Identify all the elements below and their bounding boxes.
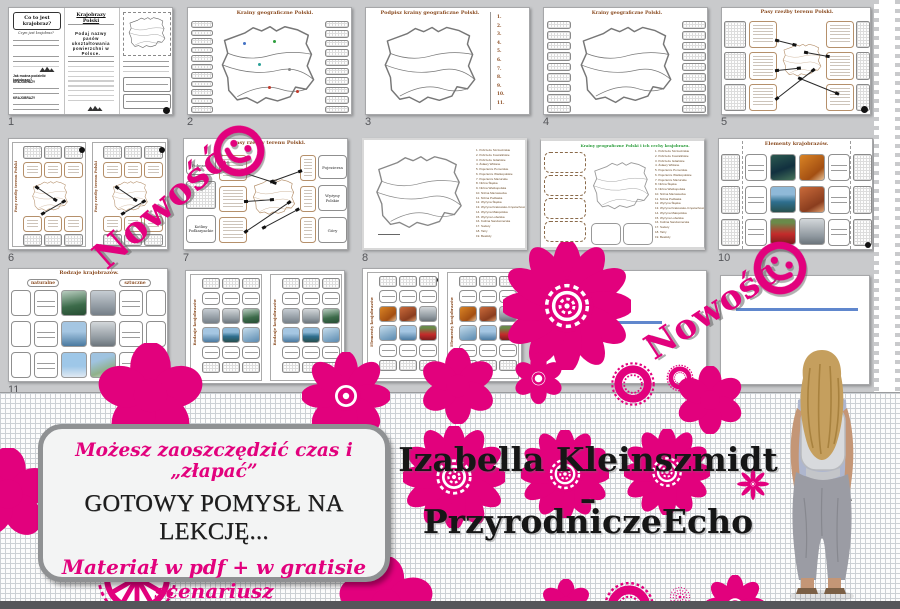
photo-skyscrapers — [90, 290, 116, 316]
caption-box — [34, 321, 58, 347]
worksheet-header-box: Co to jest krajobraz? — [13, 12, 61, 30]
grid-box — [282, 278, 300, 289]
caption-lines — [402, 292, 415, 301]
caption-box — [242, 292, 260, 305]
map-marker — [273, 40, 276, 43]
caption-lines — [37, 297, 55, 310]
answer-box — [11, 321, 31, 347]
slide-number: 3 — [365, 116, 371, 128]
text-box — [826, 52, 854, 79]
grid-box — [724, 21, 746, 48]
caption-box — [828, 154, 850, 181]
promo-collage-screen: Co to jest krajobraz? Czym jest krajobra… — [0, 0, 900, 609]
text-box — [219, 186, 247, 212]
grid-box — [682, 21, 706, 29]
label-text: Kotliny Podkarpackie — [187, 225, 215, 233]
grid-box — [64, 234, 83, 246]
answer-box-column — [547, 21, 571, 113]
slide-thumbnail-9[interactable]: Krainy geograficzne Polski i ich cechy k… — [540, 138, 705, 250]
grid-box — [682, 52, 706, 60]
text-box — [144, 162, 163, 178]
list-item: 1. — [497, 14, 527, 23]
text-box-row — [23, 216, 83, 232]
answer-box-column — [325, 21, 349, 113]
slide-title: Podpisz krainy geograficzne Polski. — [374, 11, 486, 17]
answer-box — [544, 152, 586, 173]
panel-title: Rodzaje krajobrazów — [192, 299, 197, 346]
grid-box — [242, 362, 260, 373]
text-box-row — [23, 162, 83, 178]
slide-title: Krainy geograficzne Polski. — [216, 11, 334, 17]
list-item: 5. — [497, 48, 527, 57]
slide-thumbnail-2[interactable]: Krainy geograficzne Polski. — [187, 7, 352, 115]
list-item: 19. Beskidy — [655, 235, 705, 240]
text-box — [124, 162, 143, 178]
map-marker — [268, 86, 271, 89]
promo-line-3: Materiał w pdf + w gratisie scenariusz — [43, 555, 385, 603]
logo-dot — [79, 147, 85, 153]
grid-box — [547, 52, 571, 60]
caption-box-column — [34, 290, 58, 378]
slide-title: Krainy geograficzne Polski i ich cechy k… — [567, 143, 703, 148]
slide-number: 2 — [187, 116, 193, 128]
caption-box — [828, 219, 850, 246]
slide-title: Pasy rzeźby terenu Polski. — [742, 10, 852, 16]
mountain-icon — [39, 66, 55, 72]
caption-box — [399, 290, 417, 303]
grid-box — [682, 31, 706, 39]
photo-blue-mountains — [202, 327, 220, 343]
text-box — [44, 162, 63, 178]
caption-row — [202, 292, 260, 305]
grid-box-row — [202, 362, 260, 373]
grid-box — [547, 42, 571, 50]
caption-row — [282, 292, 340, 305]
grid-box — [724, 52, 746, 79]
answer-box — [11, 290, 31, 316]
caption-box — [479, 290, 497, 303]
promo-line-1: Możesz zaoszczędzić czas i „złapać” — [43, 440, 385, 482]
list-item: 11. — [497, 100, 527, 109]
grid-box — [124, 146, 143, 159]
grid-box-column — [853, 154, 872, 246]
worksheet-question: Czym jest krajobraz? — [13, 31, 59, 35]
list-item: 2. — [497, 23, 527, 32]
photo-skyscrapers — [202, 308, 220, 324]
cut-line — [850, 141, 851, 249]
grid-box-column — [721, 154, 740, 246]
answer-box — [146, 290, 166, 316]
panel-title: Pasy rzeźby terenu Polski — [14, 161, 18, 212]
caption-lines — [245, 294, 258, 303]
grid-box — [379, 276, 397, 287]
map-box — [123, 12, 171, 56]
list-item: 4. — [497, 40, 527, 49]
caption-box — [419, 290, 437, 303]
list-item: 6. — [497, 57, 527, 66]
slide-title: Krainy geograficzne Polski. — [574, 11, 680, 16]
photo-canyon — [799, 186, 825, 213]
logo-dot — [865, 242, 871, 248]
grid-box — [547, 31, 571, 39]
category-label-left: naturalne — [27, 279, 59, 287]
grid-box-row — [23, 234, 83, 246]
ruled-lines — [13, 84, 59, 94]
grid-box — [399, 276, 417, 287]
label-box: Góry — [318, 217, 347, 243]
caption-lines — [245, 348, 258, 357]
ruled-lines — [13, 100, 59, 110]
caption-box — [302, 292, 320, 305]
divider — [119, 8, 120, 114]
grid-box — [856, 21, 870, 48]
photo-blue-mountains — [61, 321, 87, 347]
grid-box — [682, 84, 706, 92]
text-box — [749, 84, 777, 111]
grid-box — [202, 362, 220, 373]
grid-box — [547, 63, 571, 71]
photo-blue-mountains — [479, 325, 497, 341]
grid-box — [682, 42, 706, 50]
grid-box — [459, 276, 477, 287]
text-box — [826, 84, 854, 111]
list-item: 9. — [497, 83, 527, 92]
caption-lines — [225, 348, 238, 357]
grid-box — [325, 30, 349, 37]
photo-autumn — [459, 306, 477, 322]
list-item: 10. — [497, 91, 527, 100]
panel-title: Rodzaje krajobrazów — [272, 299, 277, 346]
grid-box — [721, 219, 740, 246]
promo-box: Możesz zaoszczędzić czas i „złapać” GOTO… — [38, 424, 390, 582]
text-box — [749, 21, 777, 48]
photo-row — [379, 306, 437, 322]
ruled-lines — [68, 52, 114, 104]
grid-box — [202, 278, 220, 289]
poland-map — [378, 23, 482, 111]
answer-box-column — [724, 21, 746, 111]
text-box — [826, 21, 854, 48]
promo-line-2: GOTOWY POMYSŁ NA LEKCJĘ... — [43, 490, 385, 546]
text-box — [44, 216, 63, 232]
caption-lines — [325, 294, 338, 303]
photo-forest — [322, 308, 340, 324]
grid-box — [44, 234, 63, 246]
slide-number: 4 — [543, 116, 549, 128]
photo-blue-mountains — [282, 327, 300, 343]
slide-number: 6 — [8, 252, 14, 264]
list-item: 7. — [497, 66, 527, 75]
text-box — [103, 162, 122, 178]
grid-box — [682, 105, 706, 113]
map-marker — [258, 63, 261, 66]
map-scale-bar — [378, 234, 400, 235]
caption-box — [222, 346, 240, 359]
grid-box — [325, 59, 349, 66]
category-label-right: sztuczne — [119, 279, 151, 287]
caption-lines — [831, 225, 847, 239]
slide-thumbnail-10[interactable]: Elementy krajobrazów. — [718, 138, 873, 250]
text-box-row — [103, 162, 163, 178]
poland-map — [126, 16, 168, 51]
caption-lines — [402, 346, 415, 355]
grid-box — [325, 77, 349, 84]
question-box — [123, 77, 171, 92]
grid-box — [721, 186, 740, 213]
grid-box — [191, 30, 213, 37]
caption-lines — [285, 294, 298, 303]
caption-lines — [122, 297, 140, 310]
caption-lines — [462, 292, 475, 301]
map-marker — [296, 90, 299, 93]
photo-mountains-night — [770, 154, 796, 181]
caption-lines — [748, 161, 764, 175]
grid-box — [853, 154, 872, 181]
grid-box — [103, 146, 122, 159]
label-text: Wyżyny Polskie — [319, 193, 346, 203]
photo-city — [222, 308, 240, 324]
grid-box — [682, 63, 706, 71]
caption-box — [242, 346, 260, 359]
mountain-icon — [87, 105, 103, 111]
caption-row — [202, 346, 260, 359]
slide-thumbnail-3[interactable]: Podpisz krainy geograficzne Polski. 1.2.… — [365, 7, 530, 115]
panel-title: Pasy rzeźby terenu Polski — [94, 161, 98, 212]
photo-forest — [242, 308, 260, 324]
photo-row — [202, 327, 260, 343]
panel-title: Elementy krajobrazów — [369, 297, 374, 347]
photo-autumn — [379, 306, 397, 322]
ruled-lines — [123, 57, 169, 74]
grid-box — [325, 40, 349, 47]
grid-box — [721, 154, 740, 181]
caption-box — [202, 346, 220, 359]
grid-box — [222, 362, 240, 373]
caption-box — [379, 290, 397, 303]
grid-box-row — [103, 146, 163, 159]
grid-box — [191, 38, 213, 45]
grid-box — [325, 87, 349, 94]
caption-lines — [205, 294, 218, 303]
slide-number: 10 — [718, 252, 730, 264]
grid-box — [547, 84, 571, 92]
divider — [490, 12, 491, 110]
slide-thumbnail-5[interactable]: Pasy rzeźby terenu Polski. — [721, 7, 871, 115]
caption-lines — [422, 292, 435, 301]
photo-skyscrapers — [282, 308, 300, 324]
grid-box — [547, 105, 571, 113]
ruled-lines — [68, 20, 114, 28]
caption-box — [282, 346, 300, 359]
list-item: 8. — [497, 74, 527, 83]
poland-map — [574, 21, 678, 113]
flower-icon — [420, 348, 496, 424]
caption-lines — [37, 328, 55, 341]
grid-box — [191, 21, 213, 28]
caption-box — [399, 344, 417, 357]
cut-line — [742, 141, 743, 249]
answer-box — [544, 175, 586, 196]
grid-box — [23, 146, 42, 159]
slide-number: 8 — [362, 252, 368, 264]
label-box: Pojezierza — [318, 155, 347, 179]
grid-box — [419, 276, 437, 287]
region-list: 1. Pobrzeże Szczecińskie2. Pobrzeże Kosz… — [655, 149, 705, 239]
map-marker — [288, 68, 291, 71]
grid-box — [547, 21, 571, 29]
photo-lake — [222, 327, 240, 343]
grid-box — [191, 89, 213, 96]
ruled-lines — [13, 52, 59, 67]
poland-map — [589, 155, 653, 219]
caption-box-column — [828, 154, 850, 246]
caption-lines — [482, 292, 495, 301]
caption-box — [745, 154, 767, 181]
flower-icon — [511, 351, 566, 406]
photo-city-street — [799, 218, 825, 245]
list-item: 19. Beskidy — [476, 234, 526, 239]
photo-canyon — [479, 306, 497, 322]
answer-box — [11, 352, 31, 378]
photo-blue-mountains — [399, 325, 417, 341]
answer-box — [544, 221, 586, 242]
caption-box — [34, 352, 58, 378]
grid-box — [322, 278, 340, 289]
grid-box — [191, 72, 213, 79]
grid-box-row — [282, 278, 340, 289]
caption-lines — [225, 294, 238, 303]
logo-dot — [861, 106, 868, 113]
photo-row — [202, 308, 260, 324]
caption-lines — [305, 294, 318, 303]
photo-forest-mountains — [61, 290, 87, 316]
poland-map — [370, 149, 468, 239]
grid-box — [856, 52, 870, 79]
grid-box-row — [23, 146, 83, 159]
logo-dot — [159, 147, 165, 153]
bottom-edge-bar — [0, 601, 900, 609]
hyperlink-text-line[interactable] — [736, 308, 858, 311]
grid-box — [191, 55, 213, 62]
slide-thumbnail-4[interactable]: Krainy geograficzne Polski. — [543, 7, 708, 115]
grid-box — [325, 96, 349, 103]
grid-box-row — [202, 278, 260, 289]
caption-box — [119, 290, 143, 316]
grid-box — [479, 276, 497, 287]
worksheet-title: Co to jest krajobraz? — [14, 15, 60, 27]
text-box — [300, 155, 316, 181]
caption-box — [282, 292, 300, 305]
photo-city — [302, 308, 320, 324]
clue-box-column — [826, 21, 854, 111]
cut-out-panel: Pasy rzeźby terenu Polski — [12, 142, 86, 247]
clue-box-column — [300, 155, 316, 243]
grid-box — [191, 106, 213, 113]
divider — [64, 8, 65, 114]
answer-box-column — [191, 21, 213, 113]
grid-box — [682, 94, 706, 102]
caption-lines — [748, 193, 764, 207]
caption-box-column — [745, 154, 767, 246]
numbered-answer-list: 1.2.3.4.5.6.7.8.9.10.11. — [497, 14, 527, 109]
grid-box — [853, 186, 872, 213]
grid-box — [547, 94, 571, 102]
answer-box-column — [11, 290, 31, 378]
slide-number: 1 — [8, 116, 14, 128]
caption-lines — [831, 161, 847, 175]
author-name-line-2: PrzyrodniczeEcho — [398, 502, 778, 541]
grid-box — [282, 362, 300, 373]
photo-poppies — [419, 325, 437, 341]
slide-thumbnail-1[interactable]: Co to jest krajobraz? Czym jest krajobra… — [8, 7, 173, 115]
clue-box-column — [749, 21, 777, 111]
caption-box — [222, 292, 240, 305]
photo-ice — [379, 325, 397, 341]
grid-box — [191, 81, 213, 88]
grid-box — [682, 73, 706, 81]
photo-row — [379, 325, 437, 341]
photo-mountain-lake — [770, 186, 796, 213]
grid-box — [547, 73, 571, 81]
label-box: Kotliny Podkarpackie — [186, 215, 216, 243]
map-marker — [243, 42, 246, 45]
slide-number: 5 — [721, 116, 727, 128]
grid-box — [399, 360, 417, 371]
region-list: 1. Pobrzeże Szczecińskie2. Pobrzeże Kosz… — [476, 148, 526, 238]
label-text: naturalne — [31, 281, 55, 286]
slide-title: Elementy krajobrazów. — [744, 142, 849, 148]
list-item: 3. — [497, 31, 527, 40]
text-box — [64, 162, 83, 178]
text-box — [23, 162, 42, 178]
author-photo — [768, 348, 876, 606]
grid-box — [191, 98, 213, 105]
flower-icon — [676, 366, 744, 434]
label-text: sztuczne — [124, 281, 145, 286]
grid-box — [302, 278, 320, 289]
text-box — [300, 186, 316, 212]
photo-canyon — [399, 306, 417, 322]
poland-map — [215, 21, 321, 113]
photo-windmill-sky — [61, 352, 87, 378]
caption-box — [745, 186, 767, 213]
slide-thumbnail-8[interactable]: 1. Pobrzeże Szczecińskie2. Pobrzeże Kosz… — [362, 138, 527, 250]
answer-box-column — [856, 21, 870, 111]
caption-box — [202, 292, 220, 305]
grid-box — [724, 84, 746, 111]
caption-box — [828, 186, 850, 213]
grid-box — [325, 21, 349, 28]
text-box — [64, 216, 83, 232]
photo-fox — [799, 154, 825, 181]
grid-box — [222, 278, 240, 289]
caption-lines — [285, 348, 298, 357]
photo-ice — [459, 325, 477, 341]
caption-row — [379, 290, 437, 303]
flower-icon — [607, 358, 659, 410]
slide-number: 7 — [183, 252, 189, 264]
answer-box-column — [682, 21, 706, 113]
answer-box — [544, 198, 586, 219]
caption-box — [34, 290, 58, 316]
grid-box — [242, 278, 260, 289]
logo-dot — [163, 107, 170, 114]
photo-lake — [302, 327, 320, 343]
photo-gray-rocks — [419, 306, 437, 322]
caption-lines — [122, 328, 140, 341]
label-text: Pojezierza — [322, 165, 343, 170]
caption-box — [322, 292, 340, 305]
